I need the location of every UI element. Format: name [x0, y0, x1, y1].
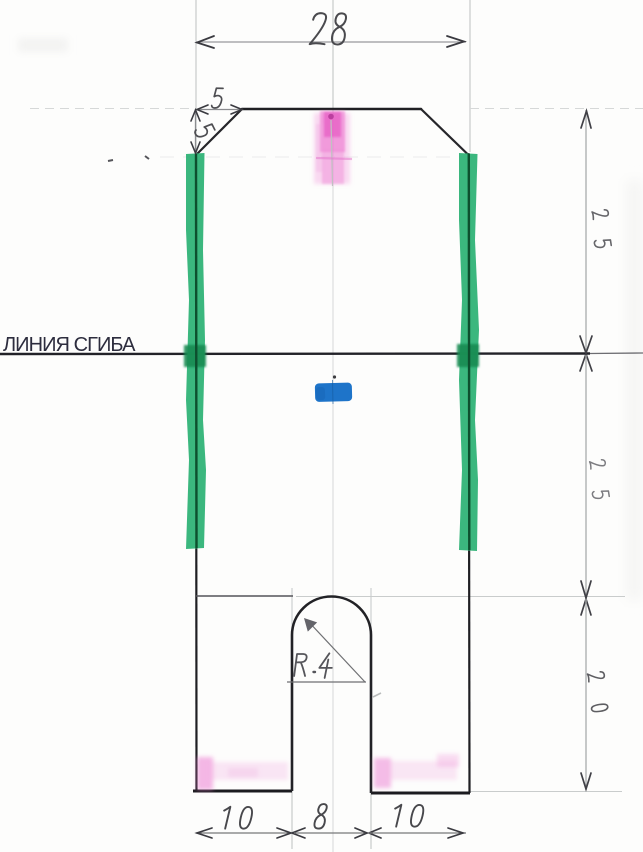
- svg-text:ЛИНИЯ СГИБА: ЛИНИЯ СГИБА: [3, 334, 137, 356]
